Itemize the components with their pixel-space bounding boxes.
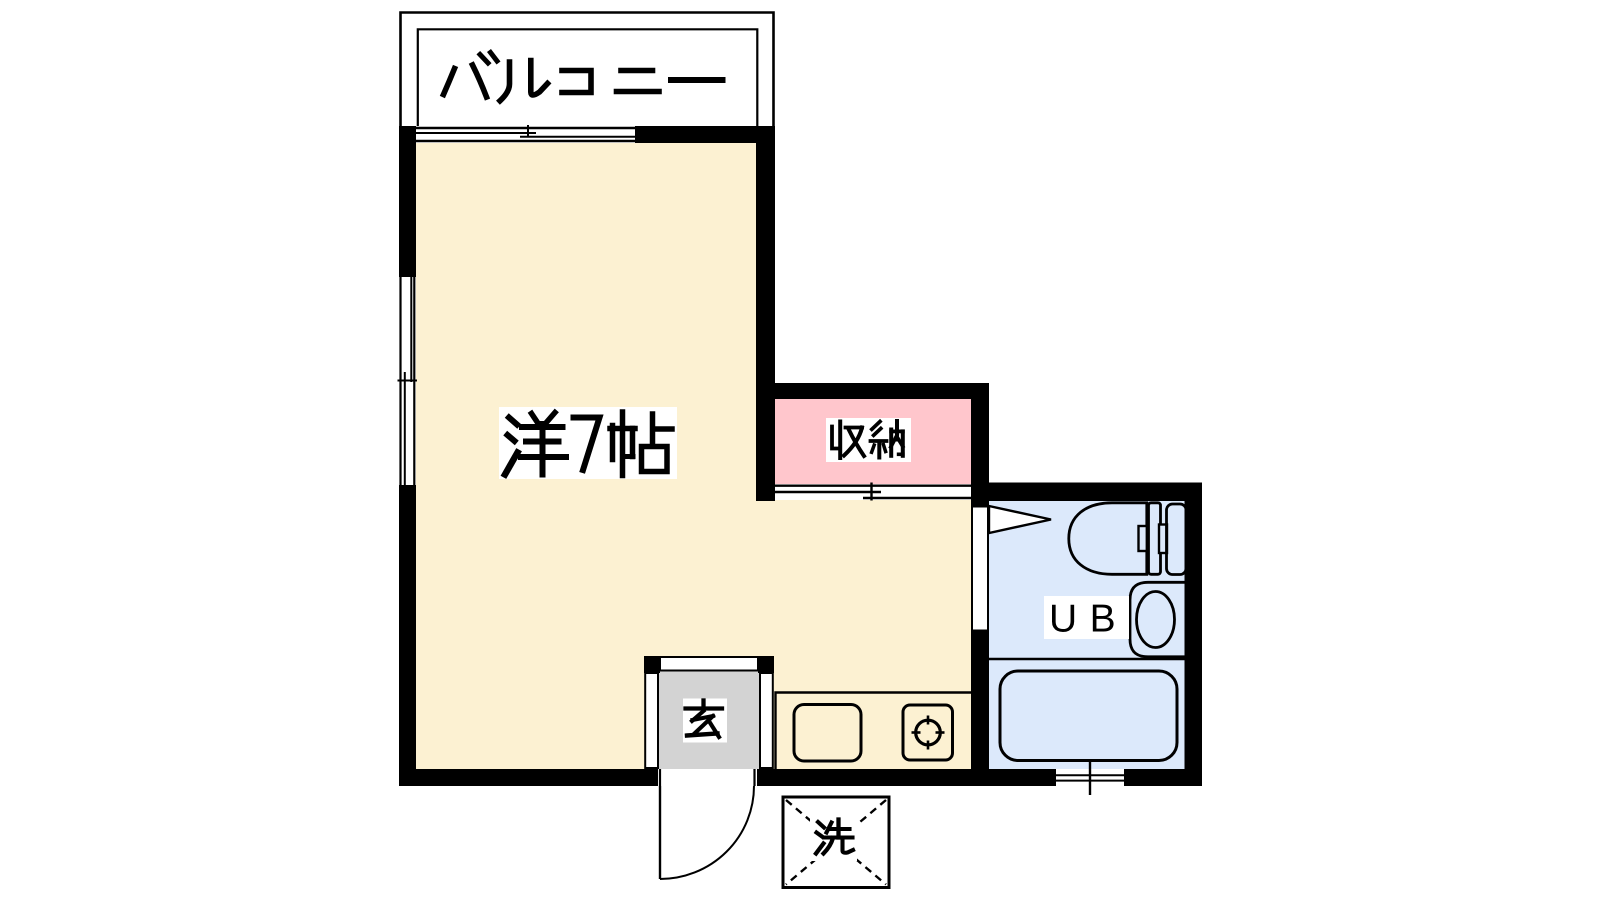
svg-text:UB: UB [1049,598,1128,641]
